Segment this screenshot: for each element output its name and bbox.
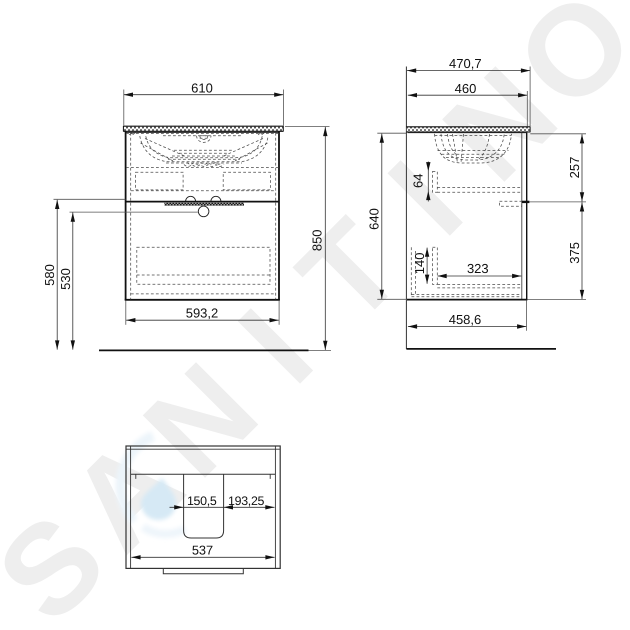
svg-text:593,2: 593,2 [186,306,219,321]
svg-text:150,5: 150,5 [187,494,217,508]
svg-text:640: 640 [367,208,382,230]
svg-text:257: 257 [567,157,582,179]
svg-text:537: 537 [192,543,213,558]
svg-text:460: 460 [455,81,477,96]
svg-text:140: 140 [412,253,427,275]
svg-text:850: 850 [310,229,325,251]
svg-text:580: 580 [42,264,57,286]
svg-text:64: 64 [411,174,426,188]
svg-text:323: 323 [467,261,489,276]
svg-text:610: 610 [191,80,213,95]
svg-text:193,25: 193,25 [228,494,265,508]
svg-text:530: 530 [58,268,73,290]
svg-text:375: 375 [567,242,582,264]
svg-text:458,6: 458,6 [449,312,482,327]
svg-text:470,7: 470,7 [449,56,482,71]
